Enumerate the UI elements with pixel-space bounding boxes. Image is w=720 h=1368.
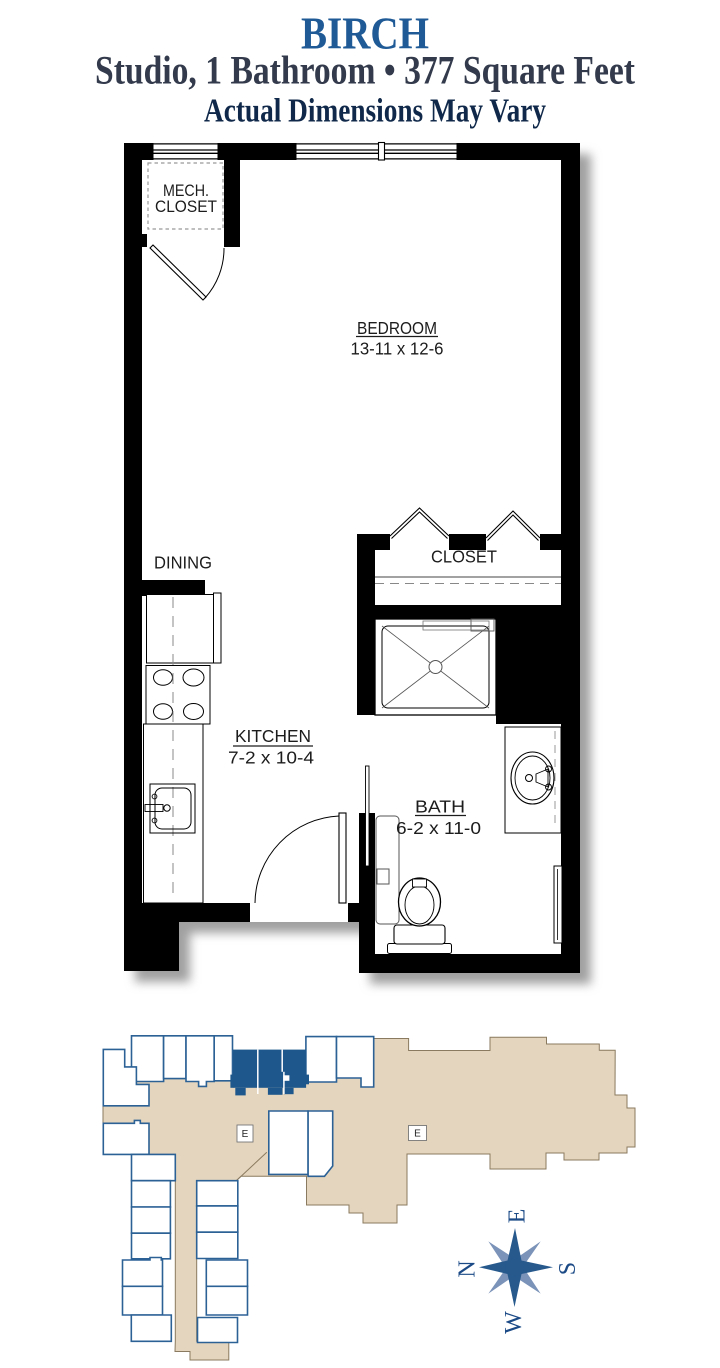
- svg-text:6-2 x 11-0: 6-2 x 11-0: [396, 818, 481, 838]
- svg-text:BATH: BATH: [415, 797, 465, 817]
- svg-text:N: N: [455, 1260, 481, 1277]
- svg-text:CLOSET: CLOSET: [155, 198, 217, 216]
- svg-text:E: E: [505, 1209, 531, 1224]
- svg-text:S: S: [555, 1262, 581, 1275]
- svg-text:E: E: [242, 1129, 249, 1140]
- svg-text:E: E: [414, 1129, 421, 1140]
- svg-text:DINING: DINING: [154, 553, 212, 573]
- svg-text:Studio, 1 Bathroom • 377 Squar: Studio, 1 Bathroom • 377 Square Feet: [95, 48, 636, 93]
- svg-text:7-2 x 10-4: 7-2 x 10-4: [228, 748, 314, 768]
- svg-text:Actual Dimensions May Vary: Actual Dimensions May Vary: [204, 93, 546, 130]
- svg-text:CLOSET: CLOSET: [431, 547, 497, 567]
- svg-text:13-11 x 12-6: 13-11 x 12-6: [351, 339, 444, 359]
- svg-text:W: W: [501, 1311, 527, 1334]
- svg-text:BEDROOM: BEDROOM: [357, 318, 437, 338]
- svg-text:KITCHEN: KITCHEN: [235, 726, 311, 746]
